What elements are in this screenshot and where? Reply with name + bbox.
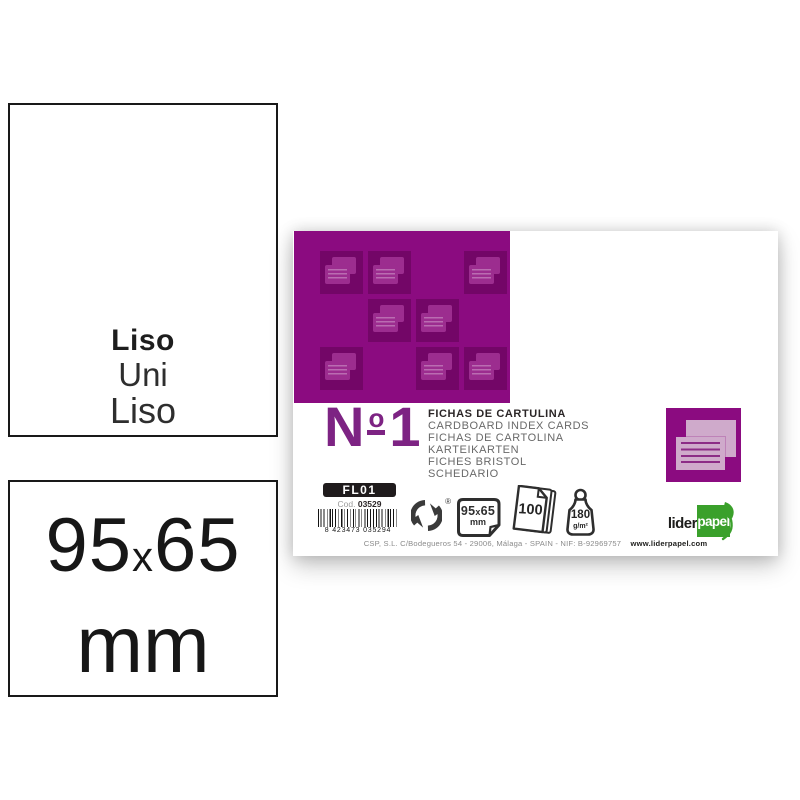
- pattern-card-lines: [424, 317, 443, 329]
- grammage-weight-icon: 180 g/m²: [562, 488, 599, 537]
- card-size-icon: 95x65 mm: [456, 497, 505, 538]
- title-de: KARTEIKARTEN: [428, 444, 589, 456]
- pattern-card-lines: [472, 365, 491, 377]
- manufacturer-address: CSP, S.L. C/Bodegueros 54 - 29006, Málag…: [364, 539, 622, 548]
- pattern-card-front: [373, 313, 398, 332]
- product-titles: FICHAS DE CARTULINA CARDBOARD INDEX CARD…: [428, 408, 589, 480]
- pattern-card-lines: [376, 269, 395, 281]
- product-listing-image: Liso Uni Liso 95x65 mm: [0, 0, 800, 800]
- card-size-text: 95x65 mm: [456, 504, 500, 527]
- pattern-card-front: [469, 361, 494, 380]
- icon-size-height: 65: [481, 504, 496, 518]
- size-unit: mm: [45, 616, 240, 674]
- pattern-card-front: [421, 313, 446, 332]
- index-card-pattern-cell: [416, 347, 459, 390]
- icon-size-width: 95: [461, 504, 476, 518]
- index-card-front: [676, 437, 725, 470]
- website-url: www.liderpapel.com: [631, 539, 708, 548]
- ean-barcode: [318, 509, 398, 527]
- texture-label-es: Liso: [111, 324, 175, 357]
- sheet-count-value: 100: [512, 501, 548, 519]
- product-number: N o 1: [324, 406, 419, 448]
- index-card-pattern-cell: [368, 299, 411, 342]
- pattern-card-front: [421, 361, 446, 380]
- title-pt: FICHAS DE CARTOLINA: [428, 432, 589, 444]
- cod-label: Cod.: [338, 499, 356, 509]
- size-text: 95x65 mm: [45, 515, 240, 674]
- title-es: FICHAS DE CARTULINA: [428, 408, 589, 420]
- pattern-card-lines: [328, 269, 347, 281]
- size-width: 95: [45, 503, 132, 588]
- logo-text-lider: lider: [668, 515, 697, 532]
- grammage-unit: g/m²: [562, 521, 599, 532]
- ean-barcode-digits: 8 423473 035294: [309, 527, 407, 534]
- purple-pattern: [294, 231, 510, 403]
- texture-label-de: Uni: [118, 357, 168, 392]
- texture-info-box: Liso Uni Liso: [8, 103, 278, 437]
- cod-value: 03529: [358, 499, 382, 509]
- product-number-n: N: [324, 406, 362, 448]
- pattern-card-front: [325, 361, 350, 380]
- index-card-pattern-cell: [320, 347, 363, 390]
- product-number-ordinal: o: [367, 409, 385, 435]
- index-cards-icon: [666, 408, 741, 482]
- pattern-card-lines: [328, 365, 347, 377]
- size-height: 65: [154, 503, 241, 588]
- index-card-pattern-cell: [464, 251, 507, 294]
- grammage-value: 180: [562, 510, 599, 521]
- leaf-icon: [721, 501, 741, 543]
- recycle-arrows: [411, 500, 442, 531]
- pattern-card-lines: [472, 269, 491, 281]
- pattern-card-front: [469, 265, 494, 284]
- size-info-box: 95x65 mm: [8, 480, 278, 697]
- size-dimensions: 95x65: [45, 515, 240, 588]
- registered-mark: ®: [445, 497, 451, 506]
- index-card-pattern-cell: [416, 299, 459, 342]
- index-card-pattern-cell: [320, 251, 363, 294]
- index-card-pattern-cell: [368, 251, 411, 294]
- grammage-text: 180 g/m²: [562, 510, 599, 532]
- pattern-card-front: [325, 265, 350, 284]
- index-card-pattern-cell: [464, 347, 507, 390]
- texture-label-pt: Liso: [110, 392, 176, 430]
- product-number-digit: 1: [389, 406, 418, 448]
- product-package: N o 1 FICHAS DE CARTULINA CARDBOARD INDE…: [293, 231, 778, 556]
- title-it: SCHEDARIO: [428, 468, 589, 480]
- pattern-card-lines: [376, 317, 395, 329]
- green-dot-recycle-icon: ®: [411, 500, 451, 534]
- pattern-card-front: [373, 265, 398, 284]
- internal-code: Cod. 03529: [323, 499, 396, 509]
- title-en: CARDBOARD INDEX CARDS: [428, 420, 589, 432]
- index-card-lines: [681, 442, 720, 466]
- sheet-count-icon: 100: [511, 485, 559, 537]
- reference-code-badge: FL01: [323, 483, 396, 497]
- size-separator: x: [132, 533, 154, 580]
- liderpapel-logo: lider papel: [633, 505, 753, 539]
- title-fr: FICHES BRISTOL: [428, 456, 589, 468]
- pattern-card-lines: [424, 365, 443, 377]
- manufacturer-line: CSP, S.L. C/Bodegueros 54 - 29006, Málag…: [293, 539, 778, 548]
- icon-size-unit: mm: [456, 518, 500, 527]
